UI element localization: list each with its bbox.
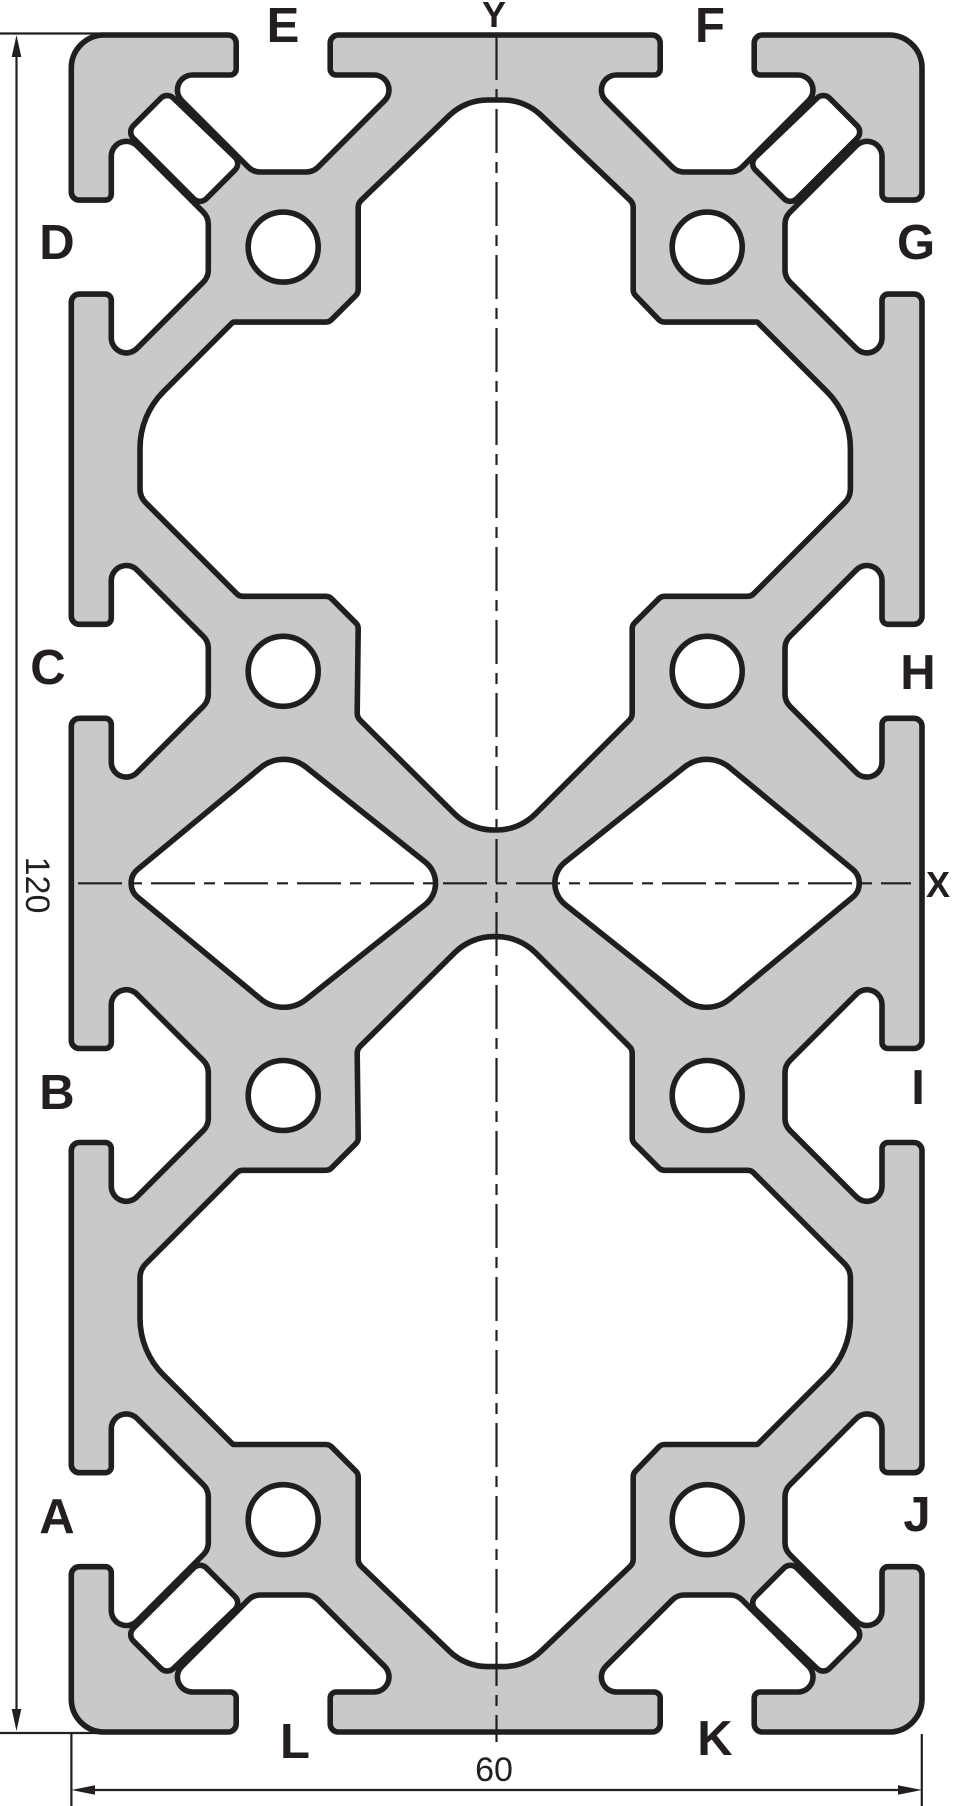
svg-text:B: B xyxy=(39,1066,74,1120)
svg-text:A: A xyxy=(39,1490,74,1544)
svg-text:I: I xyxy=(911,1061,925,1115)
svg-text:X: X xyxy=(926,864,950,905)
svg-text:L: L xyxy=(280,1715,310,1769)
svg-text:K: K xyxy=(697,1712,732,1766)
svg-text:D: D xyxy=(39,216,74,270)
svg-text:G: G xyxy=(897,216,935,270)
svg-text:E: E xyxy=(267,0,300,53)
svg-text:H: H xyxy=(900,646,935,700)
svg-text:120: 120 xyxy=(18,857,56,914)
svg-text:F: F xyxy=(695,0,725,53)
svg-text:60: 60 xyxy=(475,1751,513,1789)
svg-text:Y: Y xyxy=(482,0,506,35)
svg-text:J: J xyxy=(903,1488,930,1542)
svg-text:C: C xyxy=(30,641,65,695)
